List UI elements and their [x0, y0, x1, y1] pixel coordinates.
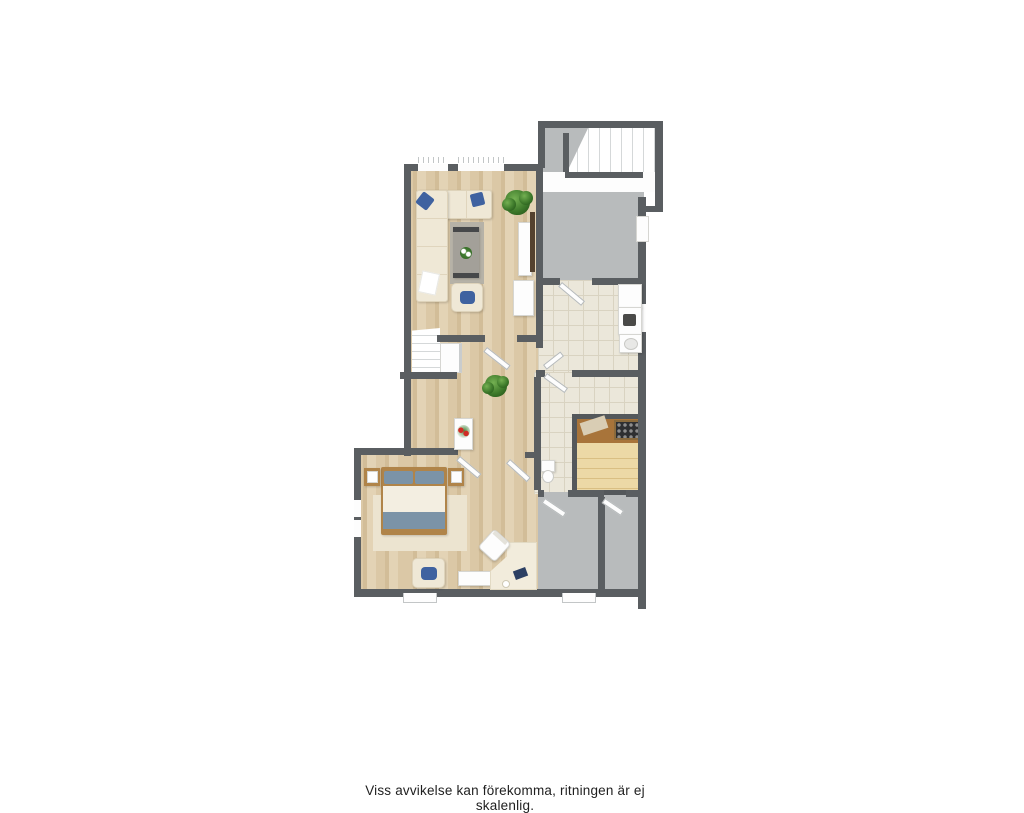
- wall: [572, 370, 646, 377]
- table-flowers: [460, 247, 472, 259]
- sauna: [572, 414, 646, 495]
- wall: [538, 121, 662, 128]
- lamp: [451, 471, 462, 483]
- wall: [646, 206, 663, 212]
- hall-closet: [440, 343, 462, 373]
- wall: [536, 164, 543, 286]
- coffee-table: [453, 227, 479, 278]
- washing-machine: [618, 307, 642, 335]
- wall: [598, 497, 605, 593]
- wall: [536, 286, 543, 348]
- sink-basin: [624, 338, 638, 350]
- double-bed: [381, 467, 447, 535]
- wall: [565, 172, 643, 178]
- window: [458, 164, 504, 171]
- living-armchair: [451, 283, 483, 312]
- disclaimer-text: Viss avvikelse kan förekomma, ritningen …: [340, 783, 670, 813]
- window: [354, 500, 361, 517]
- wall: [638, 197, 646, 609]
- bed-pillow: [415, 471, 444, 484]
- toilet-bowl: [542, 470, 554, 483]
- armchair-cushion: [421, 567, 437, 580]
- window: [354, 520, 361, 537]
- potted-plant: [505, 190, 530, 215]
- wall: [534, 377, 541, 490]
- sauna-towel: [580, 415, 609, 435]
- lamp: [367, 471, 378, 483]
- sauna-heater: [614, 420, 640, 440]
- radiator: [636, 216, 649, 242]
- floor-plan: Viss avvikelse kan förekomma, ritningen …: [340, 112, 670, 612]
- desk-items: [502, 580, 510, 588]
- window-ticks: [458, 157, 504, 163]
- nightstand: [364, 468, 380, 486]
- staircase-down: [412, 328, 440, 372]
- wall: [517, 335, 536, 342]
- bathroom-sink: [619, 334, 642, 353]
- sideboard: [458, 571, 494, 586]
- nightstand: [448, 468, 464, 486]
- armchair-cushion: [460, 291, 475, 304]
- bedroom-armchair: [412, 558, 445, 588]
- tv-panel: [530, 212, 535, 272]
- wall: [538, 490, 544, 497]
- wall: [354, 448, 458, 455]
- bed-pillow: [384, 471, 413, 484]
- wall: [568, 490, 604, 497]
- wall: [538, 278, 560, 285]
- wall: [538, 121, 545, 168]
- hall-plant: [485, 375, 507, 397]
- laptop: [513, 567, 528, 580]
- wall: [437, 335, 485, 342]
- window: [418, 164, 448, 171]
- living-cabinet: [513, 280, 534, 316]
- window-ticks: [418, 157, 448, 163]
- bathroom-counter: [618, 284, 642, 308]
- wall: [400, 372, 457, 379]
- wall: [525, 452, 539, 458]
- wall: [626, 490, 646, 497]
- wall: [404, 164, 411, 456]
- wall: [563, 133, 569, 172]
- console-table: [454, 418, 473, 450]
- console-flowers: [457, 425, 470, 438]
- door-sill: [562, 593, 596, 603]
- sauna-bench: [577, 449, 641, 490]
- bed-duvet: [383, 486, 445, 512]
- bed-blanket: [383, 512, 445, 529]
- page: { "caption": "Viss avvikelse kan förekom…: [0, 0, 1024, 724]
- wall: [655, 121, 663, 212]
- washer-drum: [623, 314, 636, 326]
- door-sill: [403, 593, 437, 603]
